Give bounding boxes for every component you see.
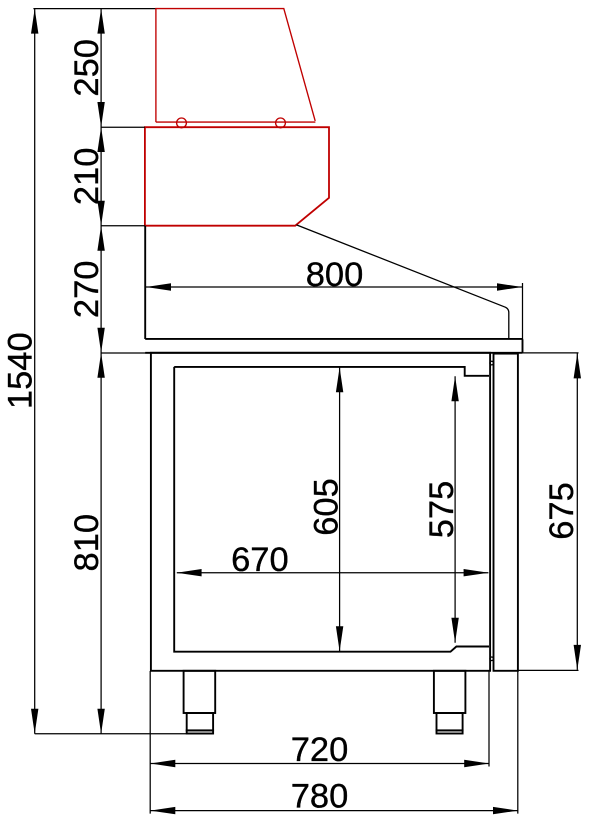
svg-text:720: 720 [291, 731, 349, 769]
svg-text:575: 575 [423, 481, 461, 539]
svg-text:670: 670 [231, 541, 289, 579]
svg-text:605: 605 [308, 478, 346, 536]
svg-text:800: 800 [306, 256, 364, 294]
svg-text:250: 250 [68, 39, 106, 97]
svg-text:780: 780 [291, 777, 349, 815]
svg-text:210: 210 [68, 148, 106, 206]
svg-text:270: 270 [68, 261, 106, 319]
svg-text:810: 810 [68, 514, 106, 572]
svg-text:675: 675 [543, 482, 581, 540]
svg-text:1540: 1540 [2, 332, 40, 409]
